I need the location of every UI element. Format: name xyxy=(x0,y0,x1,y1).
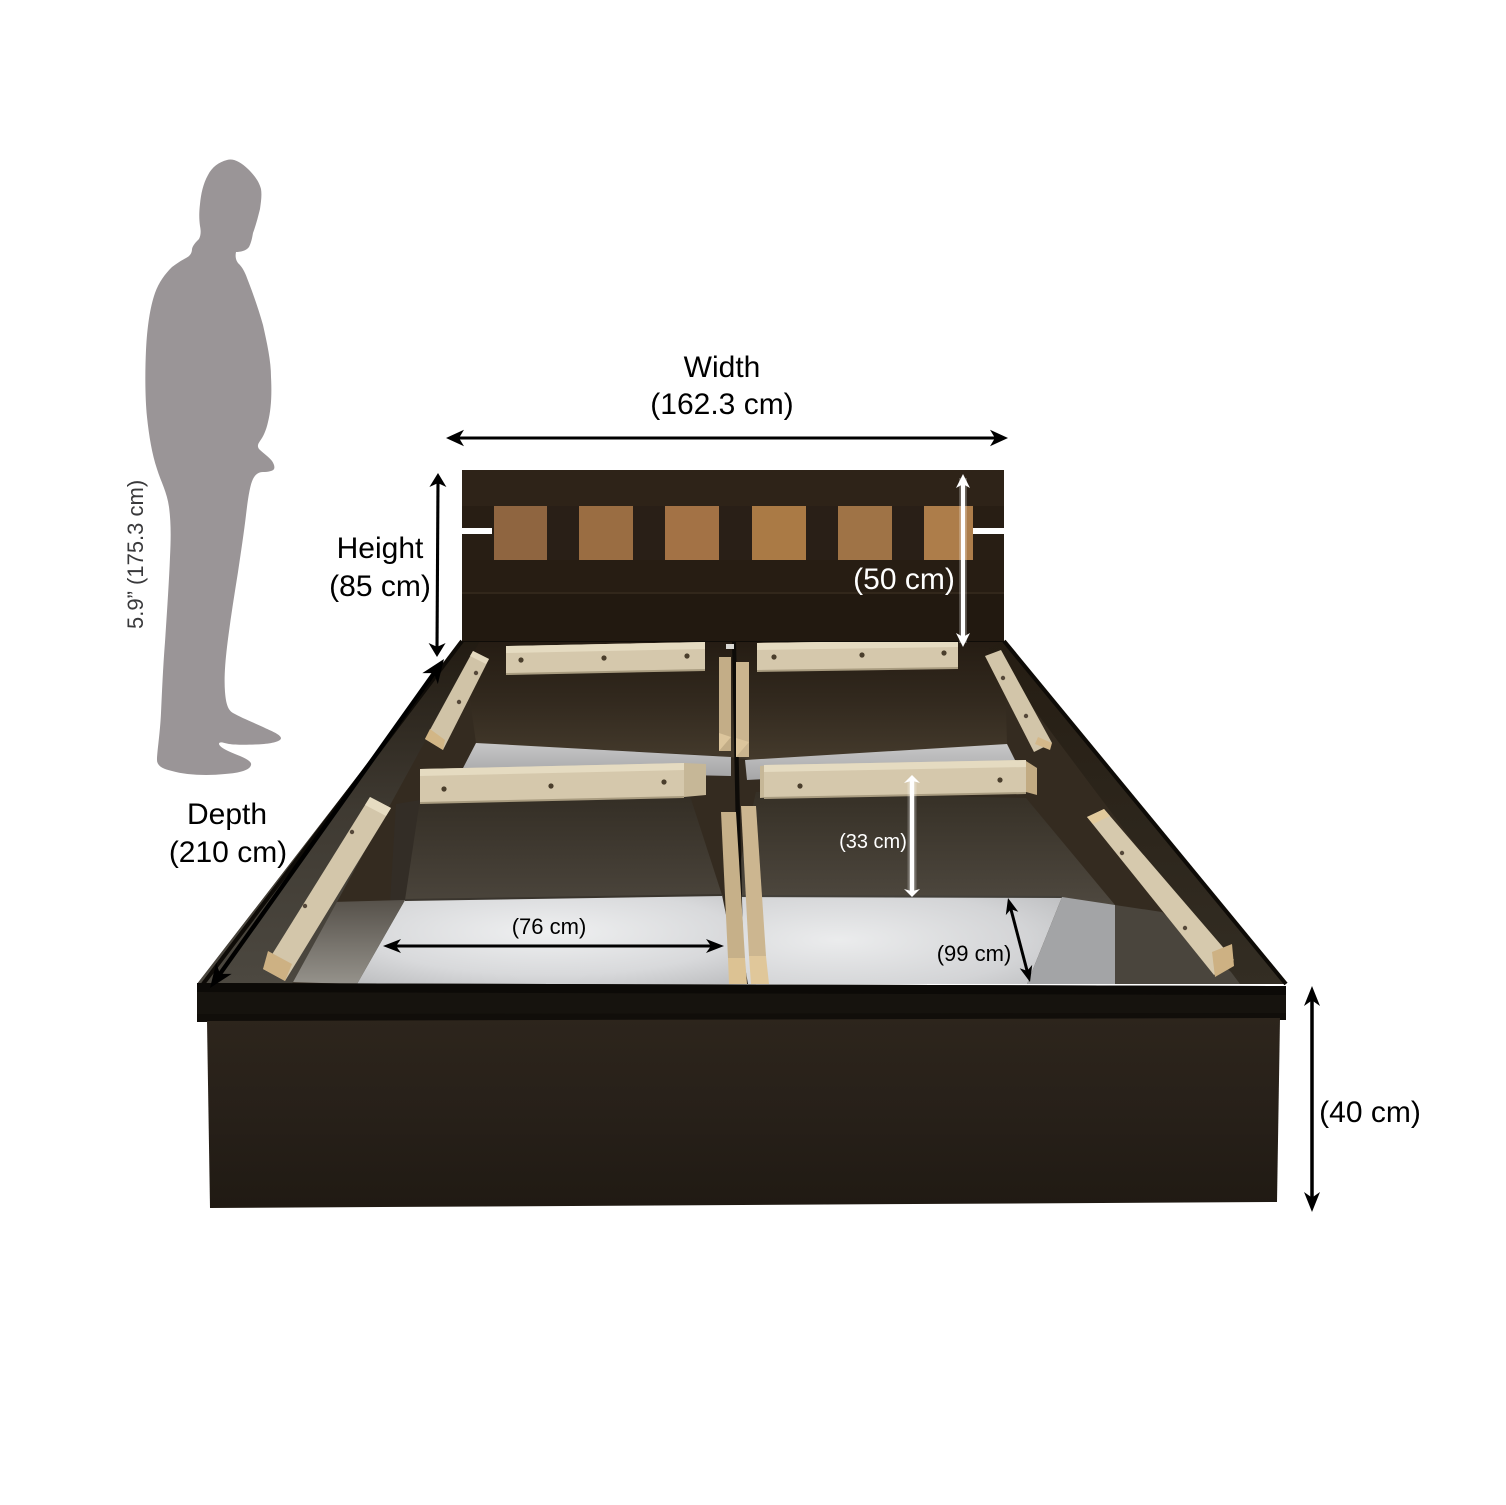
svg-text:(76 cm): (76 cm) xyxy=(512,914,587,939)
svg-text:Height: Height xyxy=(337,532,424,565)
svg-text:(33 cm): (33 cm) xyxy=(839,831,907,853)
svg-text:5.9” (175.3 cm): 5.9” (175.3 cm) xyxy=(123,480,148,629)
svg-text:(210 cm): (210 cm) xyxy=(169,836,287,869)
svg-text:Depth: Depth xyxy=(187,798,267,831)
svg-text:(162.3 cm): (162.3 cm) xyxy=(650,388,793,421)
svg-text:(85 cm): (85 cm) xyxy=(329,570,431,603)
svg-text:Width: Width xyxy=(684,351,761,384)
svg-text:(50 cm): (50 cm) xyxy=(853,563,955,596)
svg-text:(99 cm): (99 cm) xyxy=(937,941,1012,966)
svg-text:(40 cm): (40 cm) xyxy=(1319,1096,1421,1129)
